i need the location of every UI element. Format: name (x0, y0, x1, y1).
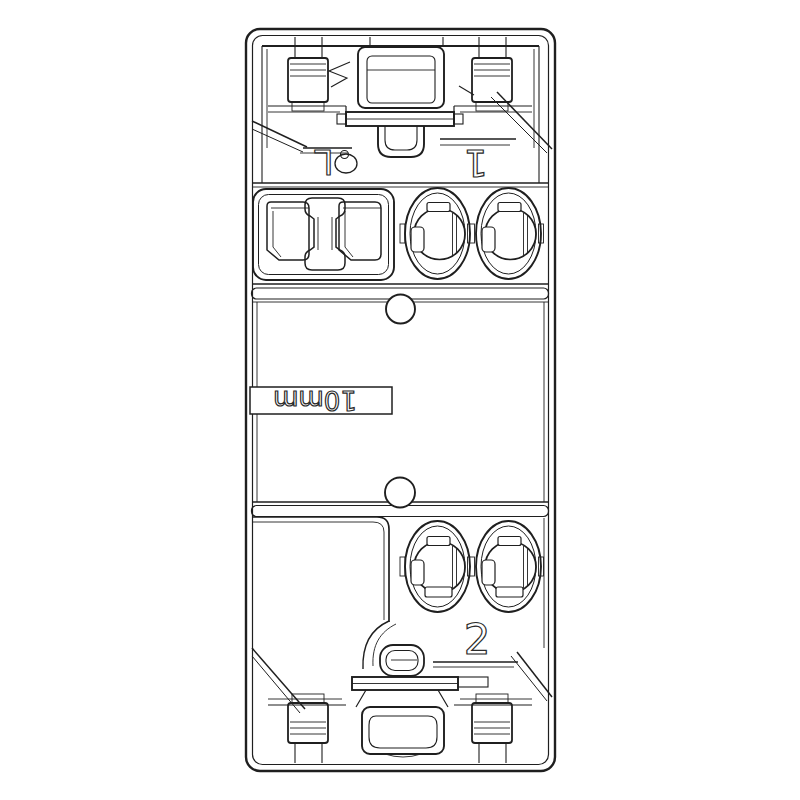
right-screw-post (472, 703, 512, 743)
terminal-top-tab (498, 203, 521, 212)
right-chamfer-edge (517, 652, 552, 697)
center-latch-button-inner (369, 716, 437, 748)
bottom-stub-lines (295, 743, 506, 763)
middle-panel: 10mm (250, 295, 549, 517)
left-compartment-edge (253, 517, 389, 622)
collar-sides (356, 690, 448, 707)
left-compartment-edge-inner (253, 522, 384, 620)
center-latch-button-inner (367, 56, 435, 103)
left-post-hatch-lines (290, 722, 326, 734)
device-technical-drawing: L 1 (0, 0, 800, 800)
crossbar-extension (458, 677, 488, 687)
oval-mid-nub (468, 224, 475, 243)
left-spring-hook (329, 62, 350, 87)
right-post-base (476, 694, 508, 703)
terminal-side-notch (482, 227, 495, 252)
ibeam-stem-lines (318, 217, 332, 250)
terminal-side-notch (482, 560, 495, 585)
fixing-hole-top (386, 295, 415, 324)
technical-drawing-canvas: L 1 (0, 0, 800, 800)
terminal-chord-lines (453, 546, 457, 588)
round-terminal-2 (476, 188, 541, 279)
bottom-mounting-clip (252, 621, 552, 763)
center-pill-tab-inner (386, 651, 418, 671)
right-post-hatch-lines (474, 64, 510, 76)
terminal-side-notch (411, 560, 424, 585)
round-terminal-4 (476, 521, 541, 612)
left-chamfer-edge (252, 648, 305, 709)
crossbar-right-nub (454, 114, 463, 124)
terminal-bottom-tab (425, 587, 452, 597)
terminal-chord-lines (524, 213, 528, 255)
left-chamfer-edge (252, 121, 307, 147)
terminal-bottom-tab (496, 587, 523, 597)
wire-slot-right-detail (343, 208, 381, 257)
label-load: L (314, 142, 333, 182)
oval-mid-nub (468, 557, 475, 576)
terminal-top-tab (427, 203, 450, 212)
right-chamfer-edge (497, 92, 552, 149)
fixing-hole-bottom (385, 478, 415, 508)
terminal-chord-lines (524, 546, 528, 588)
crossbar-left-nub (337, 114, 346, 124)
left-screw-post (288, 703, 328, 743)
terminal-top-tab (427, 537, 450, 546)
round-terminal-3 (405, 521, 470, 612)
terminal-side-notch (411, 227, 424, 252)
left-post-hatch-lines (290, 64, 326, 76)
terminal-chord-lines (453, 213, 457, 255)
right-chamfer-edge-inner (511, 656, 547, 701)
center-snap-tab-inner (385, 126, 417, 150)
right-screw-post (472, 58, 512, 102)
upper-terminal-panel (252, 188, 549, 302)
wire-slot-left-detail (271, 208, 309, 257)
label-strip-gauge: 10mm (273, 385, 357, 415)
right-post-hatch-lines (474, 722, 510, 734)
left-screw-post (288, 58, 328, 102)
keyhole-oval-icon (335, 154, 357, 173)
rect-terminal-block-inner (259, 195, 389, 275)
label-terminal-2: 2 (464, 615, 491, 664)
round-terminal-1 (405, 188, 470, 279)
label-terminal-1: 1 (464, 141, 488, 185)
center-pill-tab (380, 645, 424, 676)
terminal-top-tab (498, 537, 521, 546)
top-mounting-clip (252, 37, 552, 187)
